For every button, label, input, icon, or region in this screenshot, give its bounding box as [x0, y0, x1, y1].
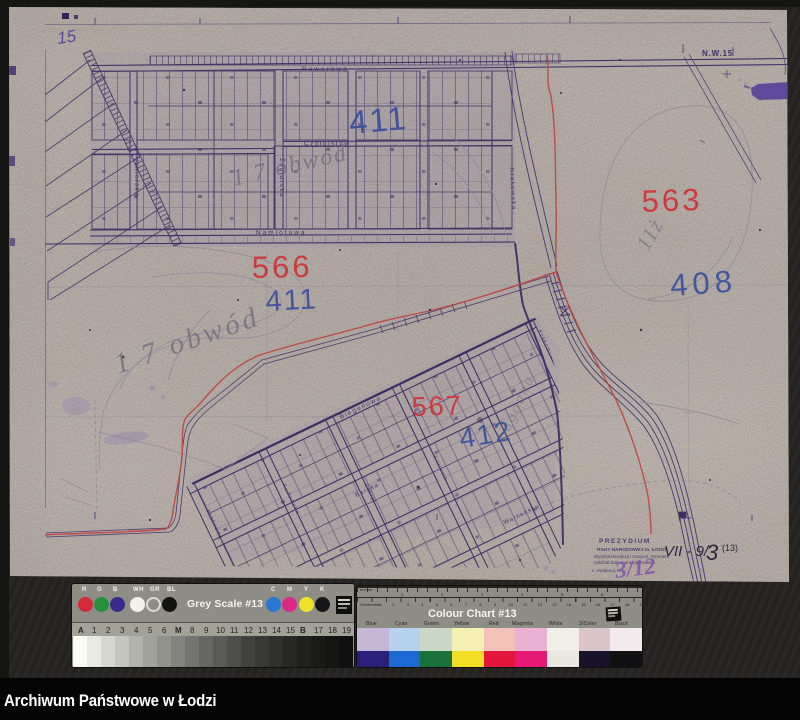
svg-text:411: 411	[265, 283, 319, 318]
svg-text:(13): (13)	[722, 543, 738, 553]
svg-text:Pionierska: Pionierska	[133, 154, 139, 197]
svg-text:15: 15	[56, 26, 78, 48]
svg-text:3: 3	[706, 540, 719, 565]
svg-text:3/12: 3/12	[613, 553, 658, 583]
svg-text:411: 411	[347, 99, 409, 141]
svg-text:PREZYDIUM: PREZYDIUM	[599, 538, 651, 545]
svg-text:Rowerowa: Rowerowa	[302, 66, 349, 73]
svg-text:566: 566	[252, 249, 313, 285]
svg-text:563: 563	[641, 182, 703, 219]
svg-text:VII - 9/: VII - 9/	[664, 543, 710, 560]
svg-text:408: 408	[669, 263, 738, 303]
svg-text:N.W.15: N.W.15	[702, 49, 733, 58]
svg-text:567: 567	[411, 390, 463, 422]
svg-text:Namiotowa: Namiotowa	[256, 230, 307, 237]
svg-text:RADY NARODOWEJ m. ŁODZI: RADY NARODOWEJ m. ŁODZI	[597, 547, 667, 553]
